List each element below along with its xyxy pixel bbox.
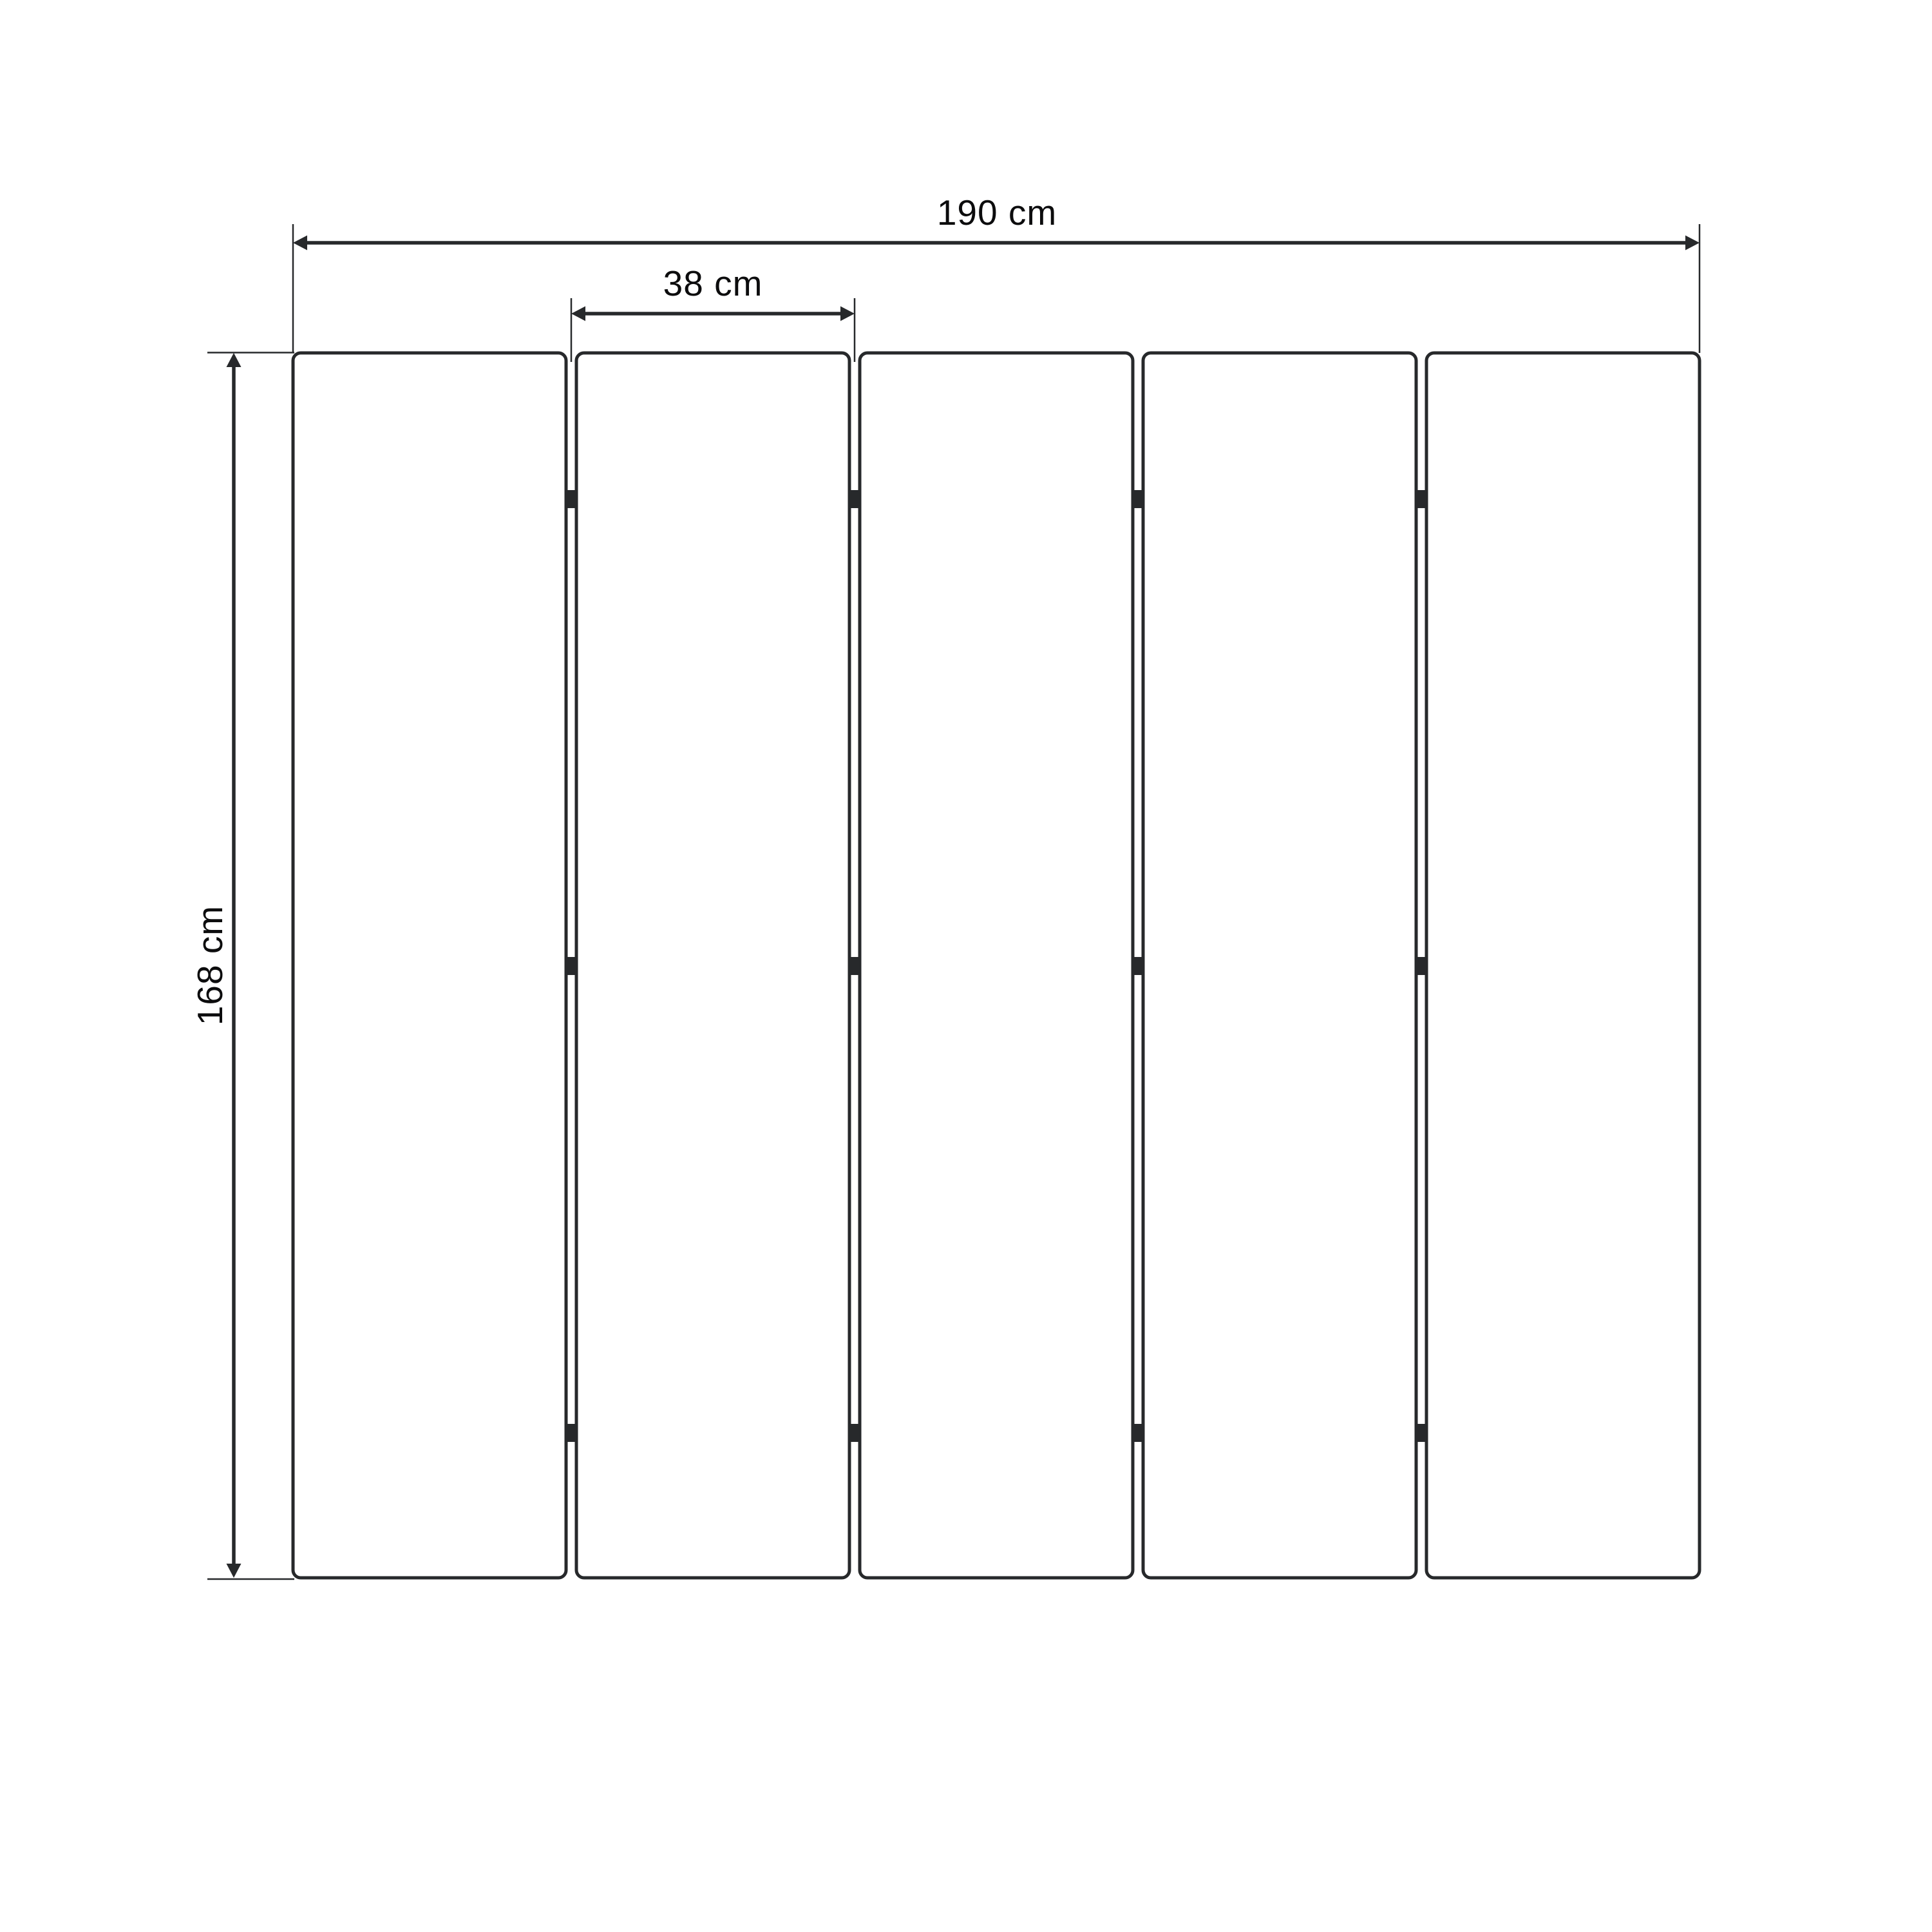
hinge-mark bbox=[1417, 957, 1426, 975]
hinge-mark bbox=[850, 1424, 859, 1442]
hinge-mark bbox=[850, 490, 859, 508]
arrow-right-icon bbox=[840, 307, 855, 321]
arrow-right-icon bbox=[1685, 236, 1700, 251]
panel-2 bbox=[576, 353, 849, 1578]
panels-group bbox=[293, 353, 1700, 1578]
technical-drawing-canvas: 190 cm 38 cm 168 cm bbox=[0, 0, 1932, 1932]
arrow-left-icon bbox=[571, 307, 585, 321]
panel-width-label: 38 cm bbox=[663, 263, 763, 303]
hinge-mark bbox=[1133, 1424, 1142, 1442]
hinge-mark bbox=[1417, 490, 1426, 508]
hinge-mark bbox=[567, 957, 576, 975]
dimension-total-width: 190 cm bbox=[293, 193, 1700, 353]
total-width-label: 190 cm bbox=[937, 193, 1057, 232]
panel-1 bbox=[293, 353, 566, 1578]
dimension-panel-width: 38 cm bbox=[571, 263, 855, 362]
dimension-height: 168 cm bbox=[190, 353, 294, 1580]
hinge-mark bbox=[850, 957, 859, 975]
panel-3 bbox=[860, 353, 1133, 1578]
arrow-left-icon bbox=[293, 236, 307, 251]
hinge-mark bbox=[1133, 957, 1142, 975]
arrow-up-icon bbox=[227, 353, 241, 367]
hinge-mark bbox=[567, 1424, 576, 1442]
hinge-mark bbox=[1133, 490, 1142, 508]
hinge-mark bbox=[567, 490, 576, 508]
panel-5 bbox=[1426, 353, 1700, 1578]
height-label: 168 cm bbox=[190, 905, 230, 1025]
hinge-mark bbox=[1417, 1424, 1426, 1442]
arrow-down-icon bbox=[227, 1564, 241, 1578]
panel-4 bbox=[1143, 353, 1416, 1578]
